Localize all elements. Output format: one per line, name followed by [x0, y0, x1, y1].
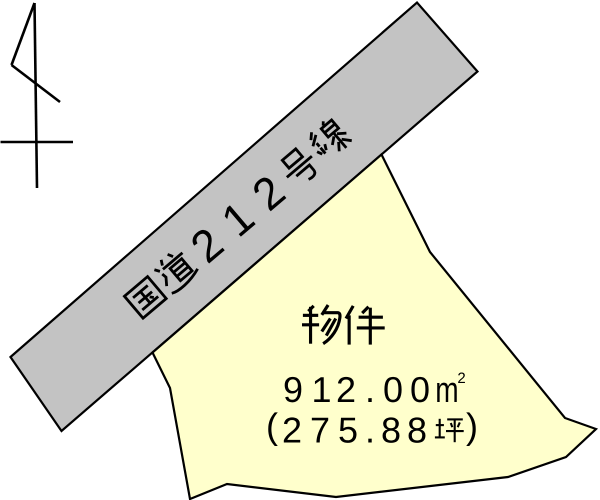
svg-text:0: 0	[410, 369, 430, 410]
svg-text:(: (	[266, 406, 278, 447]
svg-text:2: 2	[282, 410, 302, 451]
svg-text:0: 0	[383, 369, 403, 410]
svg-text:.: .	[365, 410, 375, 451]
svg-text:8: 8	[381, 410, 401, 451]
svg-text:m: m	[435, 369, 458, 410]
svg-text:2: 2	[336, 369, 356, 410]
svg-text:8: 8	[407, 410, 427, 451]
svg-text:1: 1	[311, 369, 331, 410]
svg-text:.: .	[365, 369, 375, 410]
svg-text:2: 2	[457, 370, 465, 387]
svg-text:7: 7	[310, 410, 330, 451]
svg-text:5: 5	[338, 410, 358, 451]
svg-text:): )	[466, 406, 478, 447]
svg-text:9: 9	[283, 369, 303, 410]
